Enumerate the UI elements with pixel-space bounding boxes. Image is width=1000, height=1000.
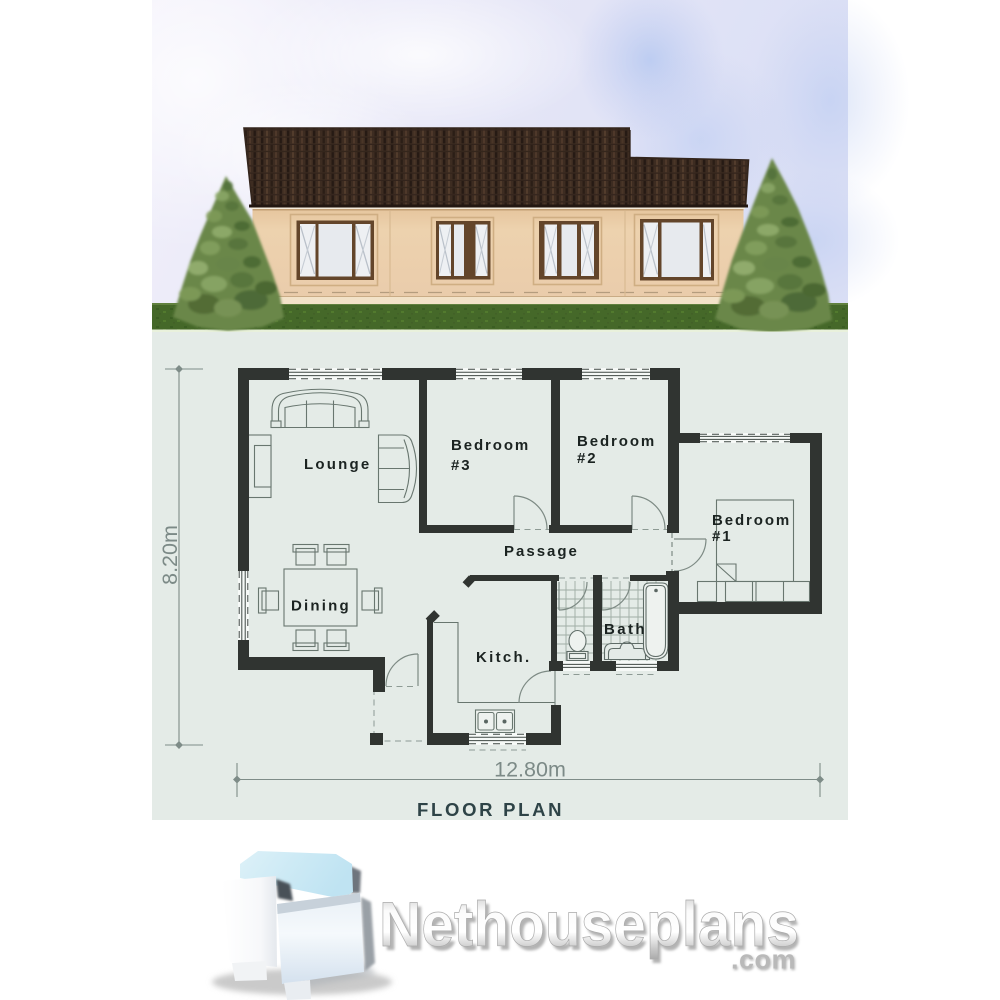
svg-text:FLOOR PLAN: FLOOR PLAN bbox=[417, 799, 564, 820]
svg-text:Bedroom: Bedroom bbox=[712, 512, 791, 529]
svg-text:Passage: Passage bbox=[504, 543, 579, 560]
svg-text:12.80m: 12.80m bbox=[494, 758, 566, 782]
svg-text:Dining: Dining bbox=[291, 598, 351, 615]
svg-text:Bath: Bath bbox=[604, 621, 647, 638]
svg-text:#2: #2 bbox=[577, 450, 598, 467]
svg-text:Lounge: Lounge bbox=[304, 456, 371, 473]
svg-text:.com: .com bbox=[731, 945, 796, 975]
svg-text:8.20m: 8.20m bbox=[158, 525, 182, 585]
svg-text:Bedroom: Bedroom bbox=[577, 433, 656, 450]
svg-text:Bedroom: Bedroom bbox=[451, 437, 530, 454]
svg-text:Kitch.: Kitch. bbox=[476, 649, 531, 666]
svg-text:#3: #3 bbox=[451, 457, 472, 474]
svg-text:#1: #1 bbox=[712, 528, 733, 545]
